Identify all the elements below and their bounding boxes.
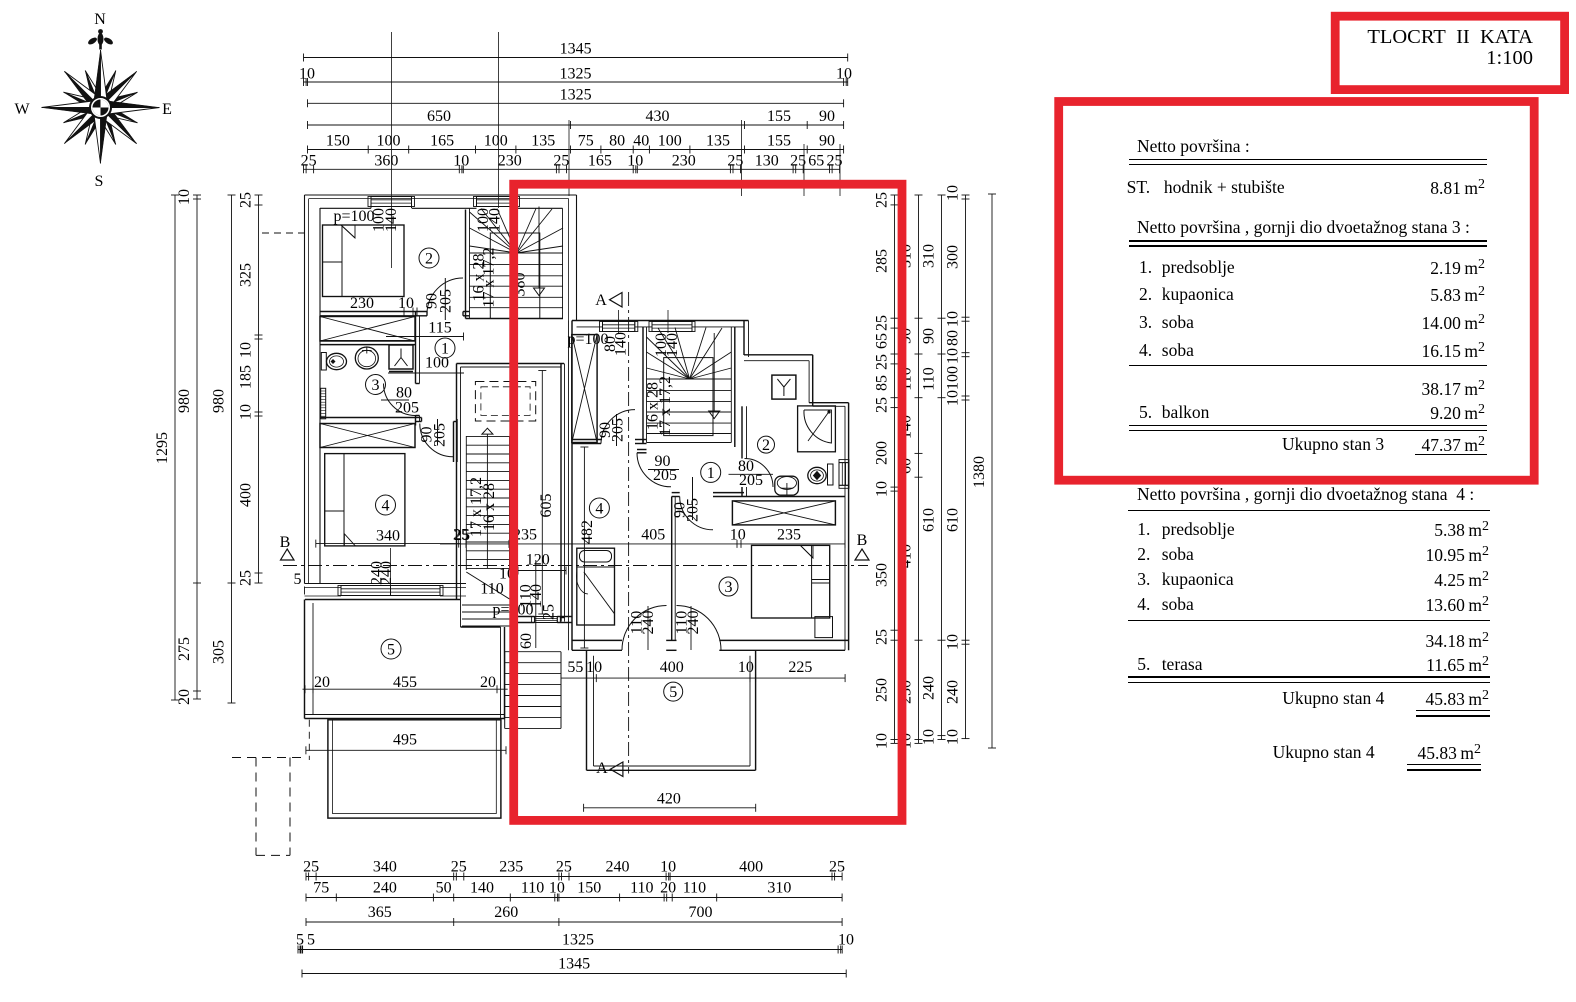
svg-text:25: 25 [553, 153, 569, 170]
svg-text:10: 10 [874, 733, 891, 749]
svg-text:230: 230 [672, 153, 696, 170]
svg-text:B: B [280, 534, 291, 551]
svg-text:165: 165 [430, 133, 454, 150]
svg-text:325: 325 [238, 263, 255, 287]
svg-text:400: 400 [238, 483, 255, 507]
svg-text:25: 25 [238, 570, 255, 586]
svg-text:140: 140 [470, 880, 494, 897]
svg-text:240: 240 [640, 611, 657, 635]
svg-text:5: 5 [296, 932, 304, 949]
svg-text:10: 10 [945, 634, 962, 650]
svg-text:10: 10 [398, 295, 414, 312]
svg-text:240: 240 [378, 561, 395, 585]
svg-text:10: 10 [549, 880, 565, 897]
svg-text:205: 205 [431, 423, 448, 447]
svg-text:75: 75 [578, 133, 594, 150]
svg-text:1345: 1345 [558, 956, 590, 973]
svg-text:10: 10 [176, 189, 193, 205]
svg-text:4: 4 [595, 501, 603, 518]
svg-text:150: 150 [326, 133, 350, 150]
svg-text:65: 65 [808, 153, 824, 170]
svg-text:25: 25 [874, 192, 891, 208]
svg-text:25: 25 [874, 397, 891, 413]
svg-text:100: 100 [945, 366, 962, 390]
svg-text:75: 75 [313, 880, 329, 897]
svg-text:350: 350 [874, 563, 891, 587]
svg-text:10: 10 [586, 659, 602, 676]
svg-text:1: 1 [707, 465, 715, 482]
svg-text:980: 980 [176, 389, 193, 413]
svg-text:185: 185 [238, 365, 255, 389]
svg-text:310: 310 [921, 244, 938, 268]
svg-text:650: 650 [427, 108, 451, 125]
svg-text:50: 50 [436, 880, 452, 897]
svg-text:10: 10 [945, 729, 962, 745]
svg-text:340: 340 [373, 859, 397, 876]
svg-text:980: 980 [211, 389, 228, 413]
svg-text:400: 400 [739, 859, 763, 876]
svg-text:S: S [95, 173, 104, 190]
svg-text:3: 3 [725, 579, 733, 596]
svg-text:140: 140 [613, 332, 630, 356]
svg-text:240: 240 [606, 859, 630, 876]
svg-text:A: A [596, 760, 608, 777]
svg-text:17 x 17,2: 17 x 17,2 [657, 376, 674, 436]
svg-text:100: 100 [377, 133, 401, 150]
svg-text:110: 110 [630, 880, 653, 897]
svg-text:4: 4 [382, 498, 390, 515]
svg-text:10: 10 [945, 390, 962, 406]
svg-text:10: 10 [836, 65, 852, 82]
svg-text:40: 40 [633, 133, 649, 150]
svg-text:240: 240 [945, 680, 962, 704]
svg-text:25: 25 [541, 604, 558, 620]
svg-text:400: 400 [660, 659, 684, 676]
svg-text:A: A [595, 292, 607, 309]
svg-text:25: 25 [874, 354, 891, 370]
svg-text:205: 205 [438, 289, 455, 313]
svg-text:5: 5 [294, 571, 302, 588]
svg-text:55: 55 [567, 659, 583, 676]
svg-text:235: 235 [499, 859, 523, 876]
svg-text:25: 25 [874, 629, 891, 645]
svg-text:610: 610 [945, 508, 962, 532]
svg-text:140: 140 [487, 208, 504, 232]
svg-text:25: 25 [451, 859, 467, 876]
svg-text:495: 495 [393, 732, 417, 749]
svg-text:240: 240 [373, 880, 397, 897]
svg-text:110: 110 [480, 581, 503, 598]
svg-text:10: 10 [945, 348, 962, 364]
svg-text:140: 140 [664, 333, 681, 357]
svg-text:20: 20 [660, 880, 676, 897]
svg-text:90: 90 [921, 328, 938, 344]
svg-text:N: N [94, 11, 106, 28]
svg-text:p=100: p=100 [333, 208, 374, 225]
svg-text:200: 200 [874, 441, 891, 465]
svg-text:90: 90 [819, 108, 835, 125]
svg-text:100: 100 [425, 355, 449, 372]
svg-text:205: 205 [610, 418, 627, 442]
svg-text:1380: 1380 [971, 456, 988, 488]
svg-text:80: 80 [609, 133, 625, 150]
svg-text:155: 155 [767, 108, 791, 125]
svg-text:365: 365 [368, 904, 392, 921]
svg-text:430: 430 [646, 108, 670, 125]
svg-text:10: 10 [453, 153, 469, 170]
svg-text:1325: 1325 [560, 65, 592, 82]
svg-text:10: 10 [627, 153, 643, 170]
svg-text:1345: 1345 [560, 41, 592, 58]
svg-text:25: 25 [301, 153, 317, 170]
svg-text:10: 10 [945, 185, 962, 201]
svg-text:300: 300 [945, 245, 962, 269]
svg-text:115: 115 [428, 320, 451, 337]
svg-text:230: 230 [350, 295, 374, 312]
svg-text:605: 605 [538, 494, 555, 518]
svg-text:135: 135 [531, 133, 555, 150]
svg-text:65: 65 [874, 333, 891, 349]
svg-text:250: 250 [874, 678, 891, 702]
svg-text:700: 700 [689, 904, 713, 921]
svg-text:10: 10 [921, 729, 938, 745]
svg-text:1295: 1295 [154, 432, 171, 464]
svg-text:130: 130 [755, 153, 779, 170]
svg-text:140: 140 [383, 208, 400, 232]
svg-text:16 x 28: 16 x 28 [481, 483, 498, 531]
svg-text:17 x 17,2: 17 x 17,2 [481, 248, 498, 308]
svg-text:155: 155 [767, 133, 791, 150]
svg-text:305: 305 [211, 640, 228, 664]
svg-text:10: 10 [945, 311, 962, 327]
svg-text:3: 3 [372, 377, 380, 394]
svg-text:150: 150 [577, 880, 601, 897]
svg-text:100: 100 [658, 133, 682, 150]
svg-text:420: 420 [657, 791, 681, 808]
svg-text:5: 5 [307, 932, 315, 949]
svg-text:1325: 1325 [562, 932, 594, 949]
svg-text:5: 5 [387, 642, 395, 659]
svg-text:10: 10 [238, 404, 255, 420]
svg-text:B: B [857, 532, 868, 549]
svg-text:25: 25 [303, 859, 319, 876]
svg-text:230: 230 [498, 153, 522, 170]
svg-text:E: E [162, 101, 172, 118]
svg-text:2: 2 [425, 251, 433, 268]
svg-text:2: 2 [762, 437, 770, 454]
svg-text:80: 80 [945, 330, 962, 346]
svg-text:90: 90 [819, 133, 835, 150]
svg-text:10: 10 [299, 65, 315, 82]
svg-text:10: 10 [738, 659, 754, 676]
svg-text:25: 25 [727, 153, 743, 170]
svg-text:W: W [14, 101, 30, 118]
svg-text:10: 10 [838, 932, 854, 949]
svg-text:482: 482 [579, 520, 596, 544]
svg-text:10: 10 [874, 481, 891, 497]
svg-text:275: 275 [176, 637, 193, 661]
svg-text:10: 10 [660, 859, 676, 876]
svg-text:235: 235 [777, 527, 801, 544]
svg-text:60: 60 [518, 633, 535, 649]
svg-text:455: 455 [393, 674, 417, 691]
svg-text:165: 165 [588, 153, 612, 170]
svg-text:405: 405 [641, 527, 665, 544]
svg-text:85: 85 [874, 375, 891, 391]
svg-text:205: 205 [395, 400, 419, 417]
svg-text:5: 5 [669, 684, 677, 701]
svg-text:25: 25 [829, 859, 845, 876]
svg-text:310: 310 [767, 880, 791, 897]
svg-text:20: 20 [314, 674, 330, 691]
svg-text:340: 340 [376, 528, 400, 545]
svg-text:360: 360 [374, 153, 398, 170]
svg-text:240: 240 [921, 676, 938, 700]
svg-text:1325: 1325 [560, 87, 592, 104]
svg-text:285: 285 [874, 249, 891, 273]
svg-text:10: 10 [238, 342, 255, 358]
svg-text:10: 10 [730, 527, 746, 544]
svg-text:25: 25 [874, 315, 891, 331]
svg-text:110: 110 [521, 880, 544, 897]
svg-text:25: 25 [453, 527, 469, 544]
svg-text:260: 260 [494, 904, 518, 921]
svg-text:610: 610 [921, 508, 938, 532]
svg-text:135: 135 [706, 133, 730, 150]
svg-text:100: 100 [484, 133, 508, 150]
svg-text:110: 110 [683, 880, 706, 897]
svg-text:25: 25 [556, 859, 572, 876]
svg-text:25: 25 [238, 192, 255, 208]
svg-text:20: 20 [480, 674, 496, 691]
svg-text:20: 20 [176, 689, 193, 705]
svg-text:110: 110 [921, 367, 938, 390]
svg-text:240: 240 [685, 611, 702, 635]
svg-text:225: 225 [788, 659, 812, 676]
